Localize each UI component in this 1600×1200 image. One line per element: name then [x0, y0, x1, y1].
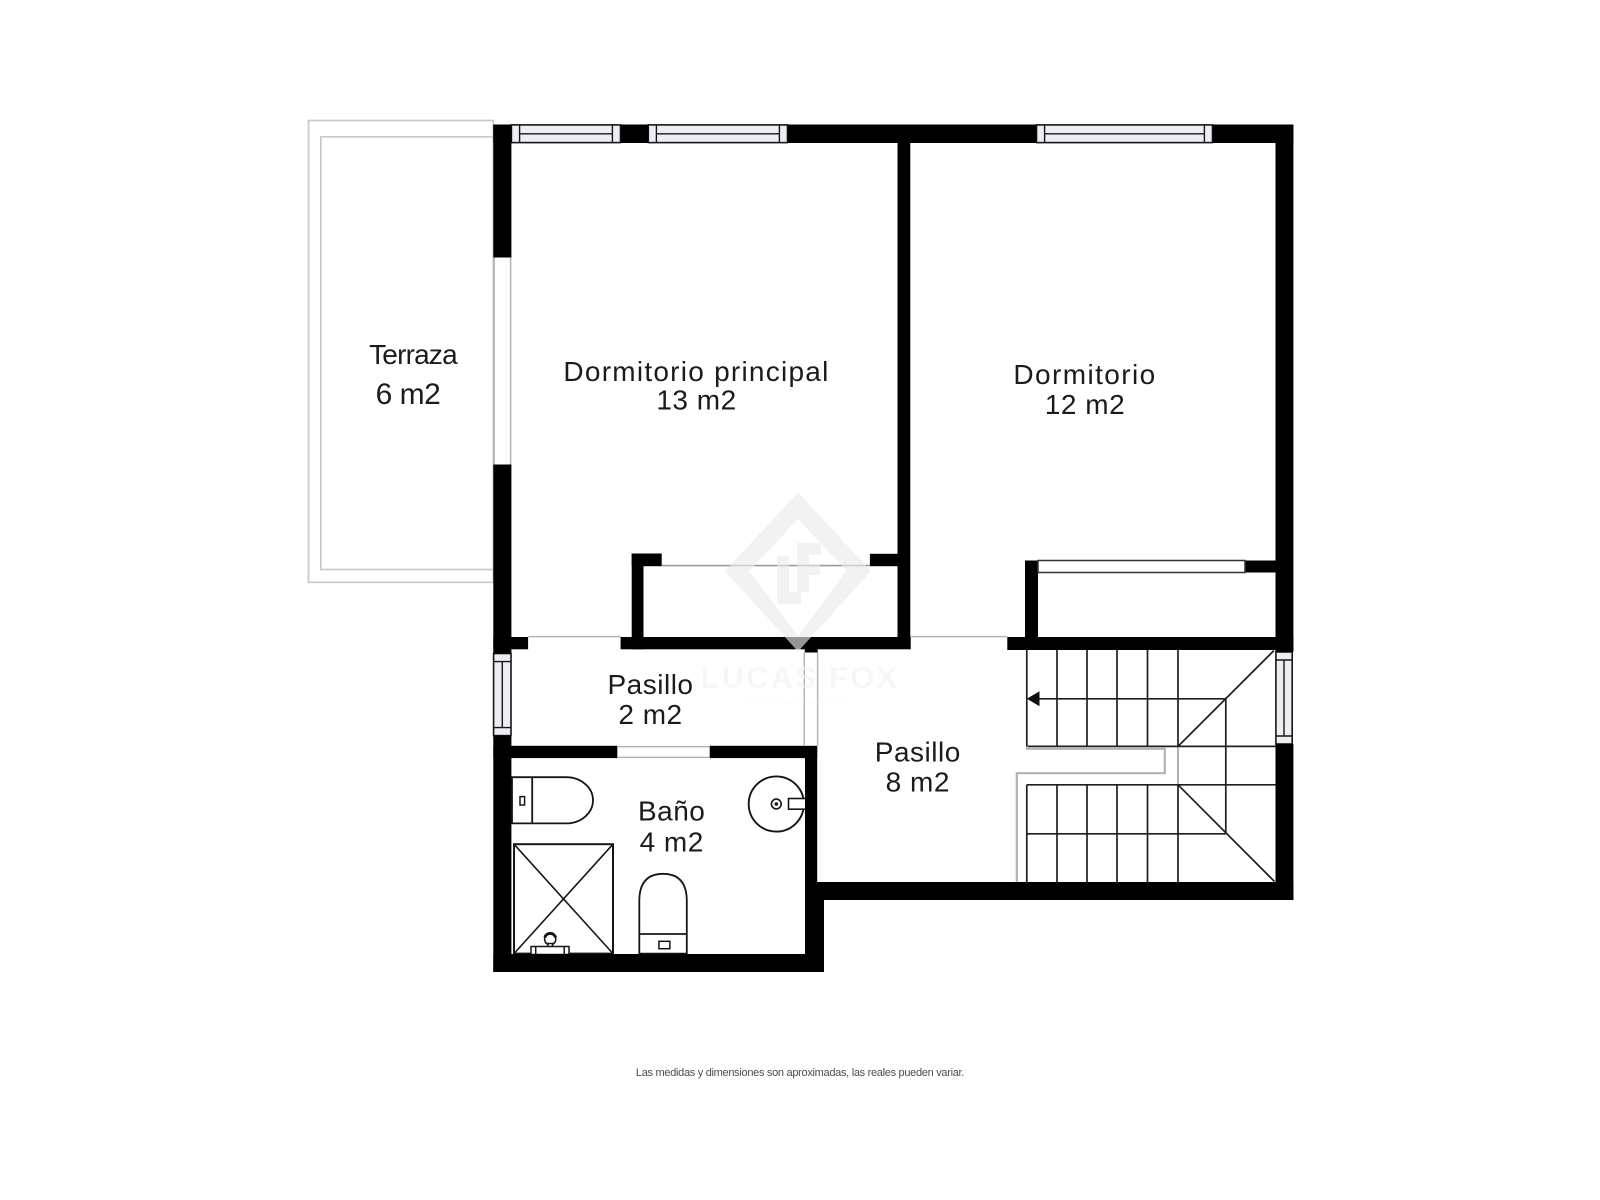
svg-text:Las medidas y dimensiones son: Las medidas y dimensiones son aproximada…: [636, 1067, 964, 1079]
svg-text:Dormitorio: Dormitorio: [1013, 359, 1156, 390]
svg-text:Dormitorio principal: Dormitorio principal: [563, 356, 829, 387]
svg-text:8 m2: 8 m2: [886, 766, 950, 797]
svg-text:13 m2: 13 m2: [656, 385, 736, 416]
svg-text:LUCAS FOX: LUCAS FOX: [701, 661, 900, 695]
svg-text:INTERNATIONAL PROPERTIES: INTERNATIONAL PROPERTIES: [744, 699, 846, 706]
svg-text:Pasillo: Pasillo: [608, 669, 694, 700]
svg-text:2 m2: 2 m2: [618, 699, 682, 730]
svg-text:Terraza: Terraza: [369, 339, 458, 370]
svg-text:Baño: Baño: [638, 795, 705, 826]
svg-text:6 m2: 6 m2: [376, 378, 441, 411]
svg-text:12 m2: 12 m2: [1045, 389, 1125, 420]
svg-text:Pasillo: Pasillo: [875, 736, 961, 767]
svg-text:4 m2: 4 m2: [640, 827, 704, 858]
